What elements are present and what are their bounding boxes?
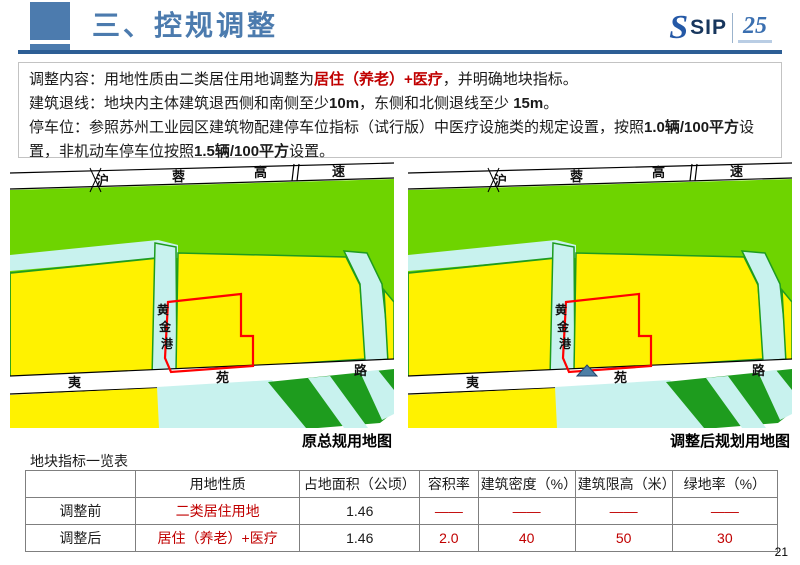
canal-label: 黄 [555, 302, 567, 317]
canal-label: 港 [161, 336, 174, 351]
expressway-label: 速 [730, 164, 743, 179]
col-header-far: 容积率 [420, 471, 479, 498]
table-row-before: 调整前 二类居住用地 1.46 —— —— —— —— [26, 498, 778, 525]
cell-land-use: 二类居住用地 [135, 498, 300, 525]
page-number: 21 [775, 545, 788, 559]
text-segment: 10m [329, 95, 359, 112]
adjusted-plan-map: 沪蓉高速夷苑路黄金港 [408, 162, 792, 428]
cell-green: —— [672, 498, 777, 525]
road-label: 路 [752, 363, 766, 378]
cell-land-use: 居住（养老）+医疗 [135, 525, 300, 552]
parcel-below-left [10, 388, 162, 428]
sip-logo-s-icon: S [669, 11, 688, 45]
page-title: 三、控规调整 [92, 4, 278, 44]
row-label: 调整后 [26, 525, 136, 552]
expressway-label: 速 [332, 164, 345, 179]
col-header-blank [26, 471, 136, 498]
text-segment: ，并明确地块指标。 [443, 71, 578, 88]
cell-green: 30 [672, 525, 777, 552]
text-segment: 建筑退线：地块内主体建筑退西侧和南侧至少 [29, 95, 329, 112]
expressway-label: 沪 [96, 173, 109, 188]
original-plan-map: 沪蓉高速夷苑路黄金港 [10, 162, 394, 428]
cell-density: —— [478, 498, 575, 525]
anniversary-25-icon: 25 [738, 14, 772, 43]
text-segment: 1.0辆/100平方 [644, 119, 739, 136]
sip-logo: S SIP 25 [669, 8, 772, 48]
road-label: 路 [354, 363, 368, 378]
parcel-left [408, 258, 558, 383]
content-panel: 调整内容：用地性质由二类居住用地调整为居住（养老）+医疗，并明确地块指标。 建筑… [18, 62, 782, 158]
content-line-1: 调整内容：用地性质由二类居住用地调整为居住（养老）+医疗，并明确地块指标。 [29, 68, 771, 92]
col-header-green: 绿地率（%） [672, 471, 777, 498]
expressway-label: 蓉 [172, 169, 186, 184]
canal-label: 黄 [157, 302, 169, 317]
anniversary-subtext-bar [738, 40, 772, 43]
right-map-caption: 调整后规划用地图 [406, 430, 790, 451]
row-label: 调整前 [26, 498, 136, 525]
cell-area: 1.46 [300, 525, 420, 552]
col-header-area: 占地面积（公顷） [300, 471, 420, 498]
cell-area: 1.46 [300, 498, 420, 525]
table-title: 地块指标一览表 [30, 451, 128, 471]
canal-label: 金 [556, 319, 570, 334]
text-segment: 15m [513, 95, 543, 112]
indicator-table: 用地性质 占地面积（公顷） 容积率 建筑密度（%） 建筑限高（米） 绿地率（%）… [25, 470, 778, 552]
road-label: 苑 [613, 370, 627, 385]
logo-divider [732, 13, 733, 43]
parcel-left [10, 258, 160, 383]
cell-height: —— [575, 498, 672, 525]
canal-label: 金 [158, 319, 172, 334]
road-label: 夷 [466, 375, 480, 390]
parcel-main [574, 253, 764, 371]
expressway-label: 沪 [494, 173, 507, 188]
road-label: 苑 [215, 370, 229, 385]
cell-far: —— [420, 498, 479, 525]
parcel-main [176, 253, 366, 371]
table-row-after: 调整后 居住（养老）+医疗 1.46 2.0 40 50 30 [26, 525, 778, 552]
text-segment: 1.5辆/100平方 [194, 143, 289, 160]
col-header-density: 建筑密度（%） [478, 471, 575, 498]
text-segment: ，东侧和北侧退线至少 [359, 95, 513, 112]
canal-label: 港 [559, 336, 572, 351]
parcel-below-left [408, 388, 560, 428]
col-header-height: 建筑限高（米） [575, 471, 672, 498]
road-label: 夷 [68, 375, 82, 390]
text-segment: 调整内容：用地性质由二类居住用地调整为 [29, 71, 314, 88]
sip-logo-text: SIP [690, 16, 727, 40]
slide-root: 三、控规调整 S SIP 25 调整内容：用地性质由二类居住用地调整为居住（养老… [0, 0, 800, 565]
text-segment: 设置。 [289, 143, 334, 160]
col-header-land-use: 用地性质 [135, 471, 300, 498]
cell-far: 2.0 [420, 525, 479, 552]
title-rule [18, 50, 782, 54]
text-segment: 居住（养老）+医疗 [314, 71, 443, 88]
text-segment: 。 [543, 95, 558, 112]
expressway-label: 蓉 [570, 169, 584, 184]
left-map-caption: 原总规用地图 [8, 430, 392, 451]
expressway-label: 高 [254, 165, 267, 180]
cell-density: 40 [478, 525, 575, 552]
content-line-3: 停车位：参照苏州工业园区建筑物配建停车位指标（试行版）中医疗设施类的规定设置，按… [29, 116, 771, 164]
title-accent-square [30, 2, 70, 40]
text-segment: 停车位：参照苏州工业园区建筑物配建停车位指标（试行版）中医疗设施类的规定设置，按… [29, 119, 644, 136]
cell-height: 50 [575, 525, 672, 552]
content-line-2: 建筑退线：地块内主体建筑退西侧和南侧至少10m，东侧和北侧退线至少 15m。 [29, 92, 771, 116]
expressway-label: 高 [652, 165, 665, 180]
table-header-row: 用地性质 占地面积（公顷） 容积率 建筑密度（%） 建筑限高（米） 绿地率（%） [26, 471, 778, 498]
